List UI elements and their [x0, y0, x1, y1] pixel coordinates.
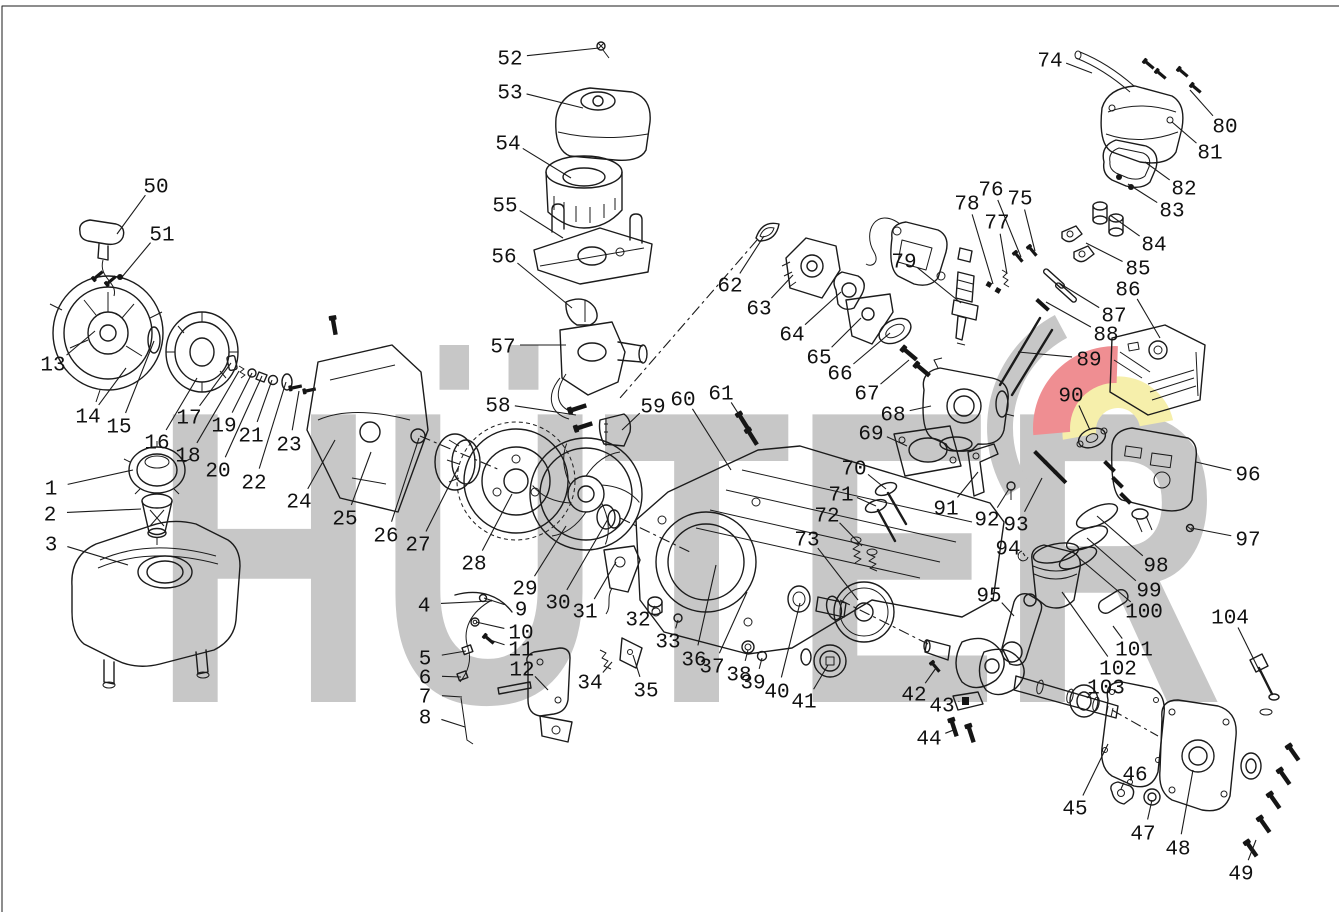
callout-64: 64	[779, 325, 804, 348]
air-filter-screw	[597, 42, 609, 58]
leader-line-62	[740, 236, 764, 273]
air-filter-cover	[556, 88, 650, 160]
callout-80: 80	[1212, 117, 1237, 140]
tappets	[1093, 202, 1123, 236]
leader-line-52	[527, 48, 599, 56]
leader-line-6	[442, 676, 461, 677]
callout-51: 51	[149, 225, 174, 248]
callout-81: 81	[1197, 143, 1222, 166]
callout-83: 83	[1159, 201, 1184, 224]
callout-96: 96	[1235, 465, 1260, 488]
exploded-view-diagram: HÜTER	[0, 0, 1339, 912]
callout-73: 73	[794, 530, 819, 553]
callout-104: 104	[1211, 608, 1249, 631]
leader-line-47	[1148, 800, 1152, 819]
callout-94: 94	[995, 539, 1020, 562]
air-filter-element	[546, 156, 622, 228]
callout-47: 47	[1130, 824, 1155, 847]
callout-90: 90	[1058, 386, 1083, 409]
callout-33: 33	[655, 632, 680, 655]
callout-63: 63	[746, 299, 771, 322]
callout-92: 92	[974, 510, 999, 533]
callout-54: 54	[495, 134, 520, 157]
head-cover-bolts	[1141, 58, 1202, 95]
callout-98: 98	[1143, 556, 1168, 579]
callout-16: 16	[144, 433, 169, 456]
leader-line-14	[99, 368, 126, 405]
callout-18: 18	[175, 446, 200, 469]
callout-35: 35	[633, 681, 658, 704]
callout-26: 26	[373, 526, 398, 549]
leader-line-80	[1190, 90, 1213, 116]
callout-29: 29	[512, 579, 537, 602]
callout-79: 79	[891, 252, 916, 275]
callout-40: 40	[764, 682, 789, 705]
head-gasket	[834, 272, 864, 309]
callout-17: 17	[176, 408, 201, 431]
leader-line-84	[1110, 215, 1140, 236]
leader-line-104	[1238, 627, 1260, 672]
callout-22: 22	[241, 473, 266, 496]
callout-7: 7	[419, 687, 432, 710]
callout-68: 68	[880, 405, 905, 428]
leader-line-85	[1086, 243, 1123, 262]
callout-4: 4	[418, 596, 431, 619]
callout-14: 14	[75, 407, 100, 430]
callout-100: 100	[1125, 602, 1163, 625]
callout-69: 69	[858, 424, 883, 447]
callout-72: 72	[814, 506, 839, 529]
callout-13: 13	[40, 355, 65, 378]
callout-67: 67	[854, 384, 879, 407]
intake-elbow	[566, 299, 597, 325]
callout-44: 44	[916, 729, 941, 752]
callout-3: 3	[45, 535, 58, 558]
callout-32: 32	[625, 610, 650, 633]
callout-76: 76	[978, 180, 1003, 203]
recoil-starter-assembly	[50, 269, 163, 402]
oil-dipstick	[1250, 654, 1279, 715]
callout-60: 60	[670, 390, 695, 413]
leader-line-53	[527, 94, 583, 108]
callout-2: 2	[44, 505, 57, 528]
callout-62: 62	[717, 276, 742, 299]
callout-31: 31	[572, 602, 597, 625]
callout-78: 78	[954, 194, 979, 217]
valve-keepers	[986, 243, 1039, 293]
callout-1: 1	[45, 479, 58, 502]
leader-line-2	[67, 509, 141, 512]
callout-59: 59	[640, 397, 665, 420]
starter-handle	[80, 220, 124, 296]
callout-71: 71	[828, 485, 853, 508]
callout-39: 39	[740, 673, 765, 696]
air-filter-base	[534, 204, 652, 284]
callout-57: 57	[490, 337, 515, 360]
callout-30: 30	[545, 593, 570, 616]
callout-56: 56	[491, 247, 516, 270]
callout-41: 41	[791, 692, 816, 715]
callout-85: 85	[1125, 259, 1150, 282]
callout-24: 24	[286, 492, 311, 515]
callout-37: 37	[699, 657, 724, 680]
callout-27: 27	[405, 535, 430, 558]
callout-95: 95	[976, 586, 1001, 609]
callout-52: 52	[497, 49, 522, 72]
callout-12: 12	[509, 660, 534, 683]
rocker-arms	[1062, 226, 1094, 262]
callout-61: 61	[708, 384, 733, 407]
callout-19: 19	[211, 416, 236, 439]
leader-line-51	[122, 243, 151, 277]
callout-53: 53	[497, 83, 522, 106]
leader-line-15	[126, 341, 154, 413]
carb-gasket	[756, 223, 779, 241]
callout-88: 88	[1093, 325, 1118, 348]
callout-50: 50	[143, 177, 168, 200]
callout-86: 86	[1115, 280, 1140, 303]
leader-line-55	[520, 211, 563, 238]
leader-line-77	[1000, 234, 1007, 274]
callout-49: 49	[1228, 864, 1253, 887]
callout-77: 77	[984, 213, 1009, 236]
callout-28: 28	[461, 554, 486, 577]
callout-9: 9	[515, 600, 528, 623]
callout-23: 23	[276, 435, 301, 458]
callout-58: 58	[485, 396, 510, 419]
callout-103: 103	[1087, 678, 1125, 701]
callout-93: 93	[1003, 515, 1028, 538]
callout-75: 75	[1007, 189, 1032, 212]
callout-42: 42	[901, 685, 926, 708]
callout-89: 89	[1076, 350, 1101, 373]
callout-99: 99	[1136, 581, 1161, 604]
callout-43: 43	[929, 696, 954, 719]
leader-line-56	[517, 263, 572, 308]
callout-97: 97	[1235, 530, 1260, 553]
callout-15: 15	[106, 417, 131, 440]
callout-84: 84	[1141, 235, 1166, 258]
leader-line-1	[68, 470, 133, 484]
callout-21: 21	[238, 426, 263, 449]
cylinder-head	[782, 238, 840, 298]
callout-8: 8	[419, 708, 432, 731]
callout-70: 70	[841, 459, 866, 482]
callout-20: 20	[205, 461, 230, 484]
callout-34: 34	[577, 673, 602, 696]
leader-line-50	[117, 195, 145, 234]
callout-25: 25	[332, 509, 357, 532]
callout-66: 66	[827, 364, 852, 387]
callout-82: 82	[1171, 179, 1196, 202]
callout-91: 91	[933, 499, 958, 522]
callout-45: 45	[1062, 799, 1087, 822]
callout-48: 48	[1165, 839, 1190, 862]
leader-line-74	[1066, 63, 1092, 73]
callout-46: 46	[1122, 765, 1147, 788]
callout-74: 74	[1037, 51, 1062, 74]
parts-diagram-page: HÜTER	[0, 0, 1339, 912]
callout-55: 55	[492, 196, 517, 219]
breather-pipe	[1075, 51, 1134, 92]
